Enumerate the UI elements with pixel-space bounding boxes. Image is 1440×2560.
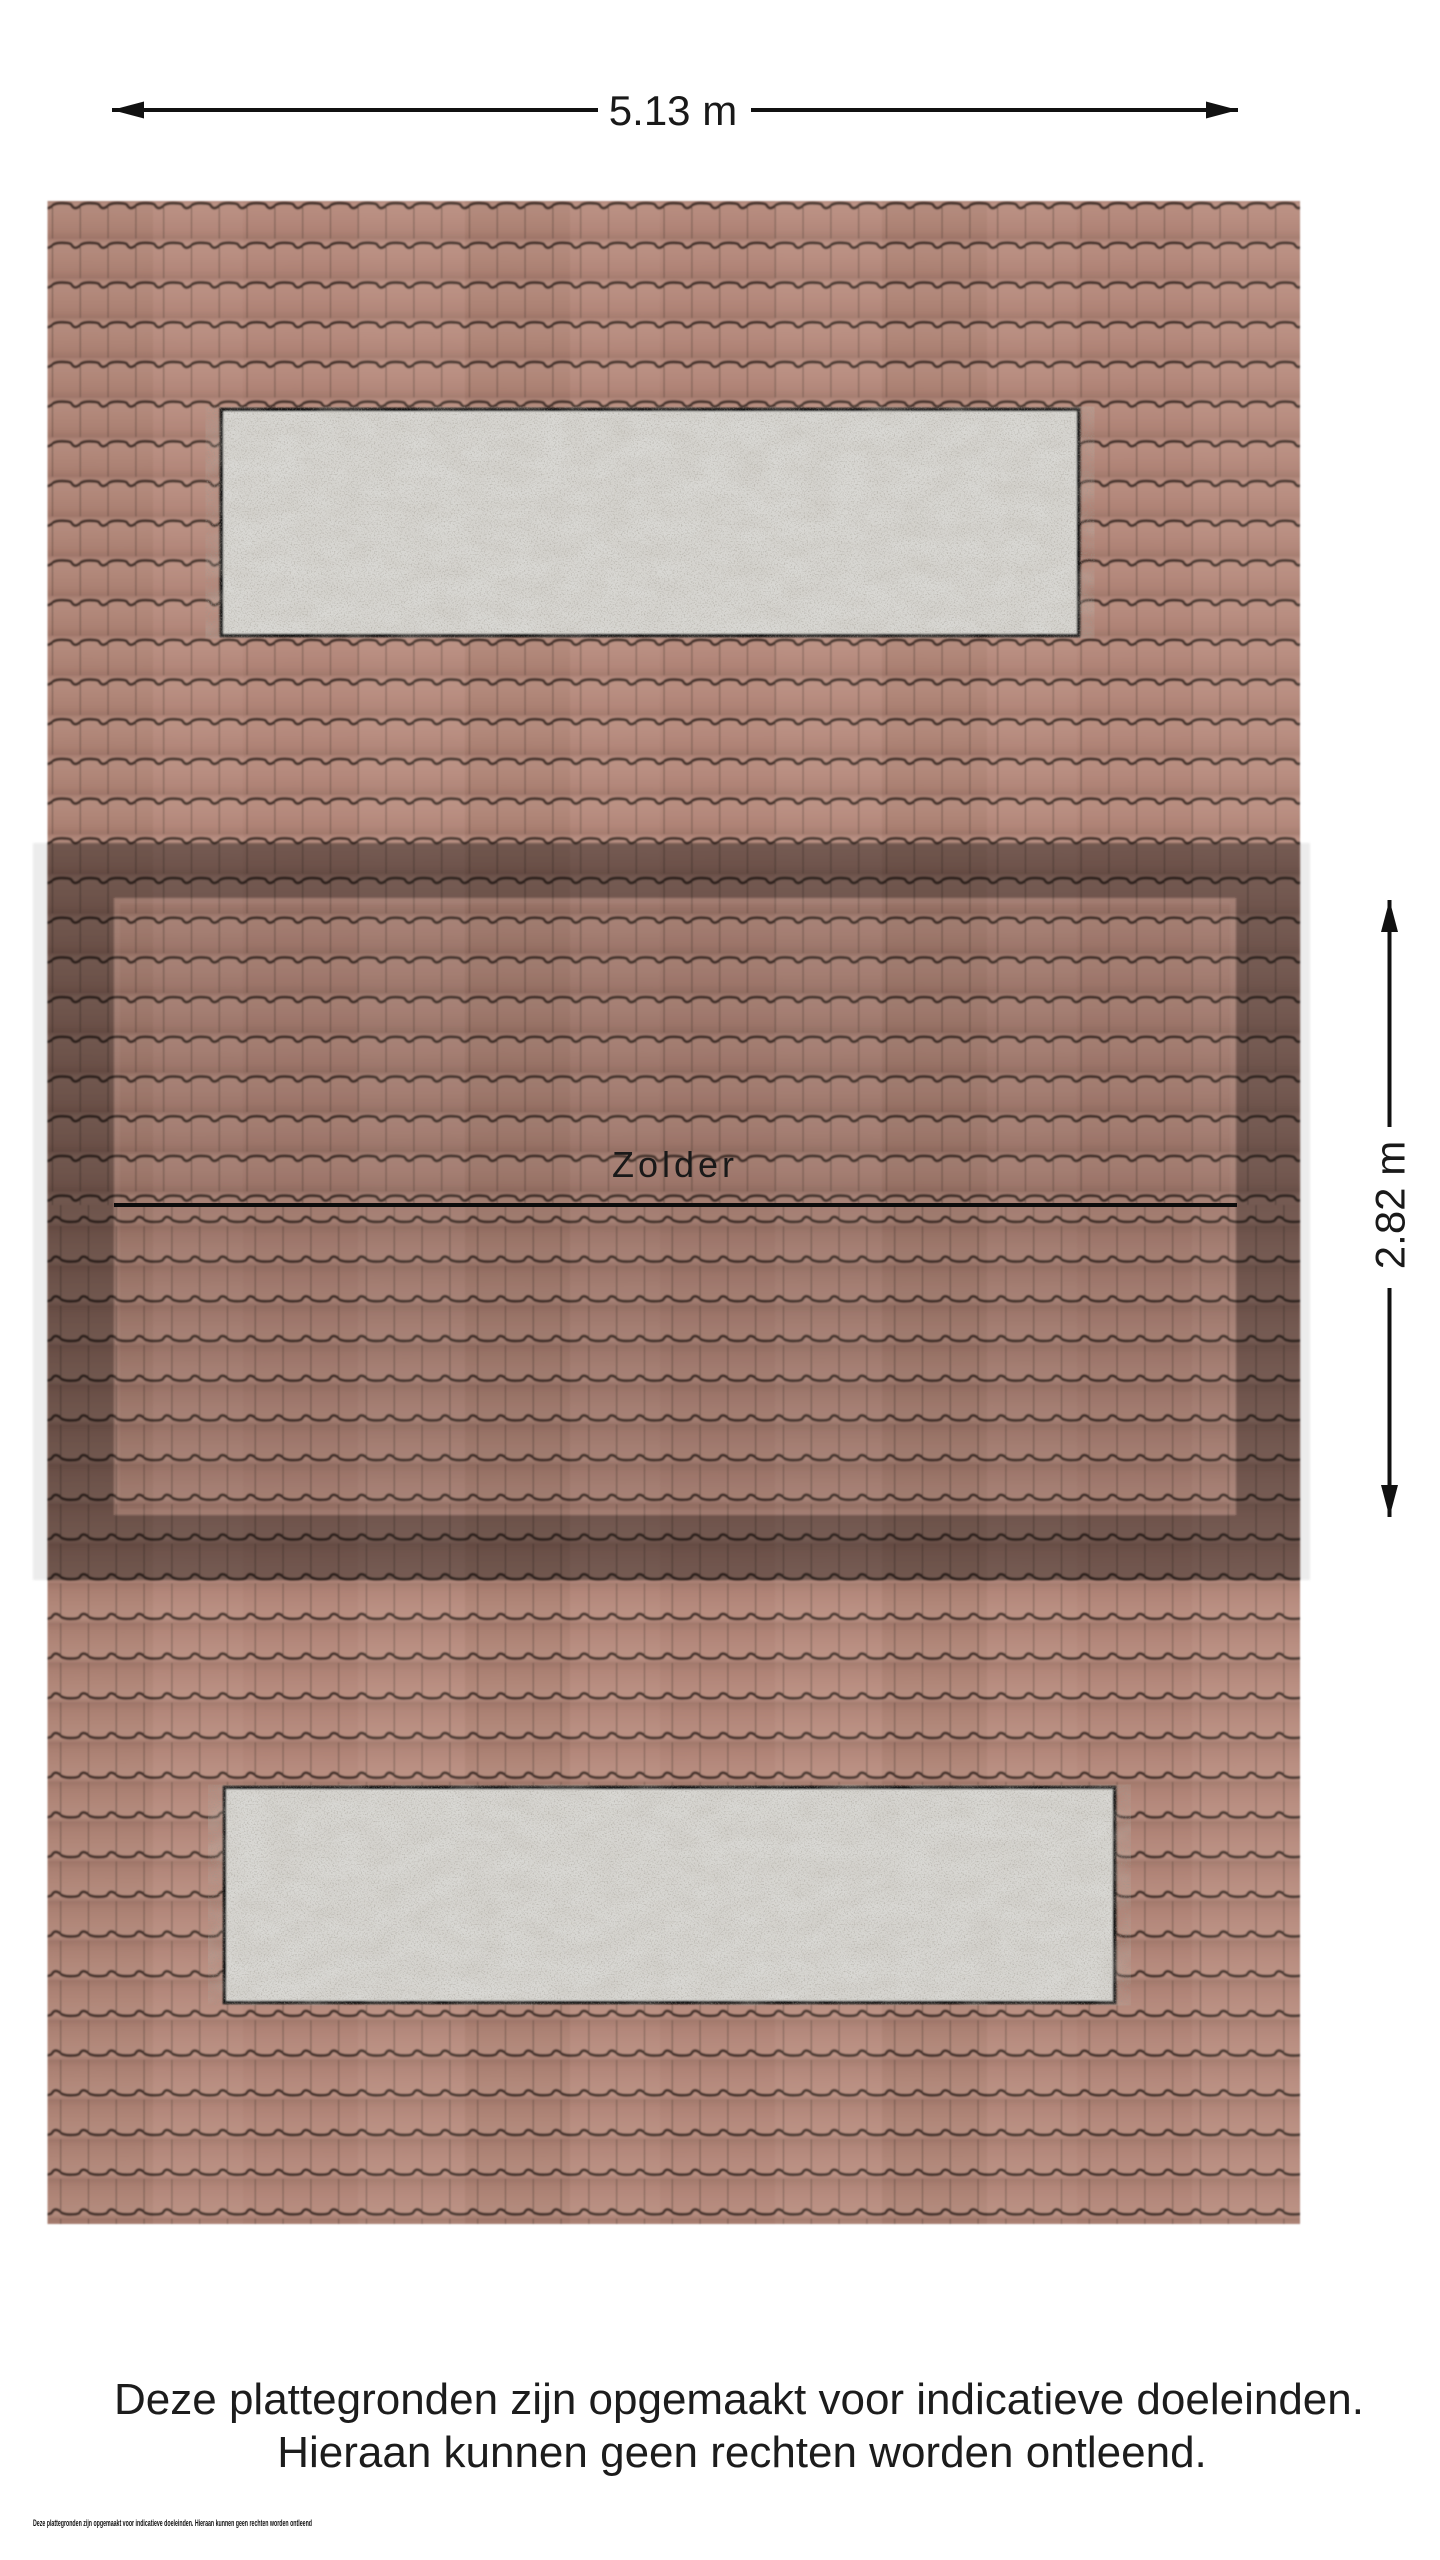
svg-text:Zolder: Zolder [612,1144,738,1185]
svg-text:Hieraan kunnen geen rechten wo: Hieraan kunnen geen rechten worden ontle… [277,2428,1207,2477]
svg-text:2.82 m: 2.82 m [1367,1141,1414,1269]
svg-text:Deze plattegronden zijn opgema: Deze plattegronden zijn opgemaakt voor i… [33,2518,312,2528]
svg-text:Deze plattegronden zijn opgema: Deze plattegronden zijn opgemaakt voor i… [114,2375,1364,2424]
svg-text:5.13 m: 5.13 m [609,87,737,134]
